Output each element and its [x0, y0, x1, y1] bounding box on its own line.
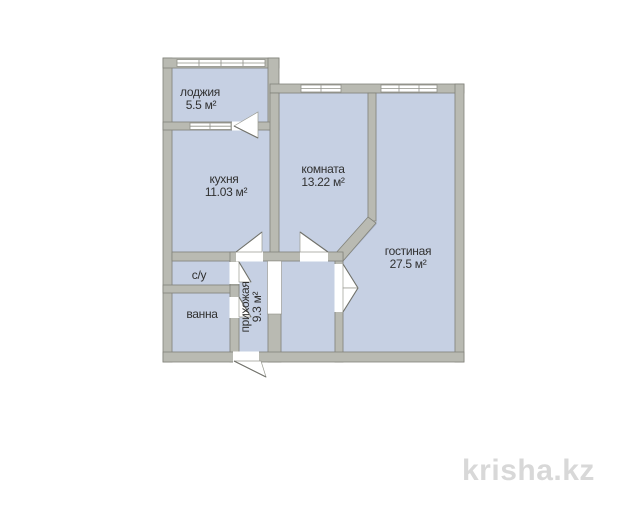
wall-bottom [163, 352, 464, 362]
label-living-area: 27.5 м² [390, 257, 427, 271]
wall-right [455, 84, 464, 362]
wall-wc-bath [163, 285, 239, 293]
label-kitchen-area: 11.03 м² [205, 185, 248, 199]
window-bedroom [301, 85, 341, 92]
floorplan-drawing: лоджия 5.5 м² кухня 11.03 м² комната 13.… [0, 0, 630, 525]
window-living [381, 85, 437, 92]
wall-kitchen-bedroom [270, 93, 279, 261]
room-bath-floor [172, 293, 230, 352]
entrance-door-leaf [234, 361, 266, 377]
wall-bedroom-living [368, 93, 376, 221]
label-bedroom-name: комната [301, 162, 345, 176]
opening-kitchen-door [236, 252, 263, 262]
label-living-name: гостиная [385, 244, 431, 258]
label-bedroom-area: 13.22 м² [301, 175, 345, 189]
opening-hall-passage [268, 261, 282, 314]
krisha-watermark-logo: krisha.kz [462, 454, 622, 488]
label-bath-name: ванна [186, 307, 218, 321]
opening-wc-door [230, 262, 240, 284]
window-loggia-kitchen [190, 123, 231, 130]
opening-bedroom-door [300, 252, 328, 262]
label-wc-name: с/у [192, 268, 207, 282]
label-loggia-area: 5.5 м² [186, 98, 217, 112]
label-kitchen-name: кухня [209, 172, 238, 186]
opening-living-door [335, 264, 345, 312]
label-loggia-name: лоджия [180, 85, 220, 99]
window-loggia-top [177, 60, 265, 67]
room-hall-mid-floor [281, 261, 335, 352]
label-hall-area: 9.3 м² [250, 291, 264, 322]
floorplan-image: лоджия 5.5 м² кухня 11.03 м² комната 13.… [0, 0, 630, 525]
wall-left [163, 58, 172, 362]
